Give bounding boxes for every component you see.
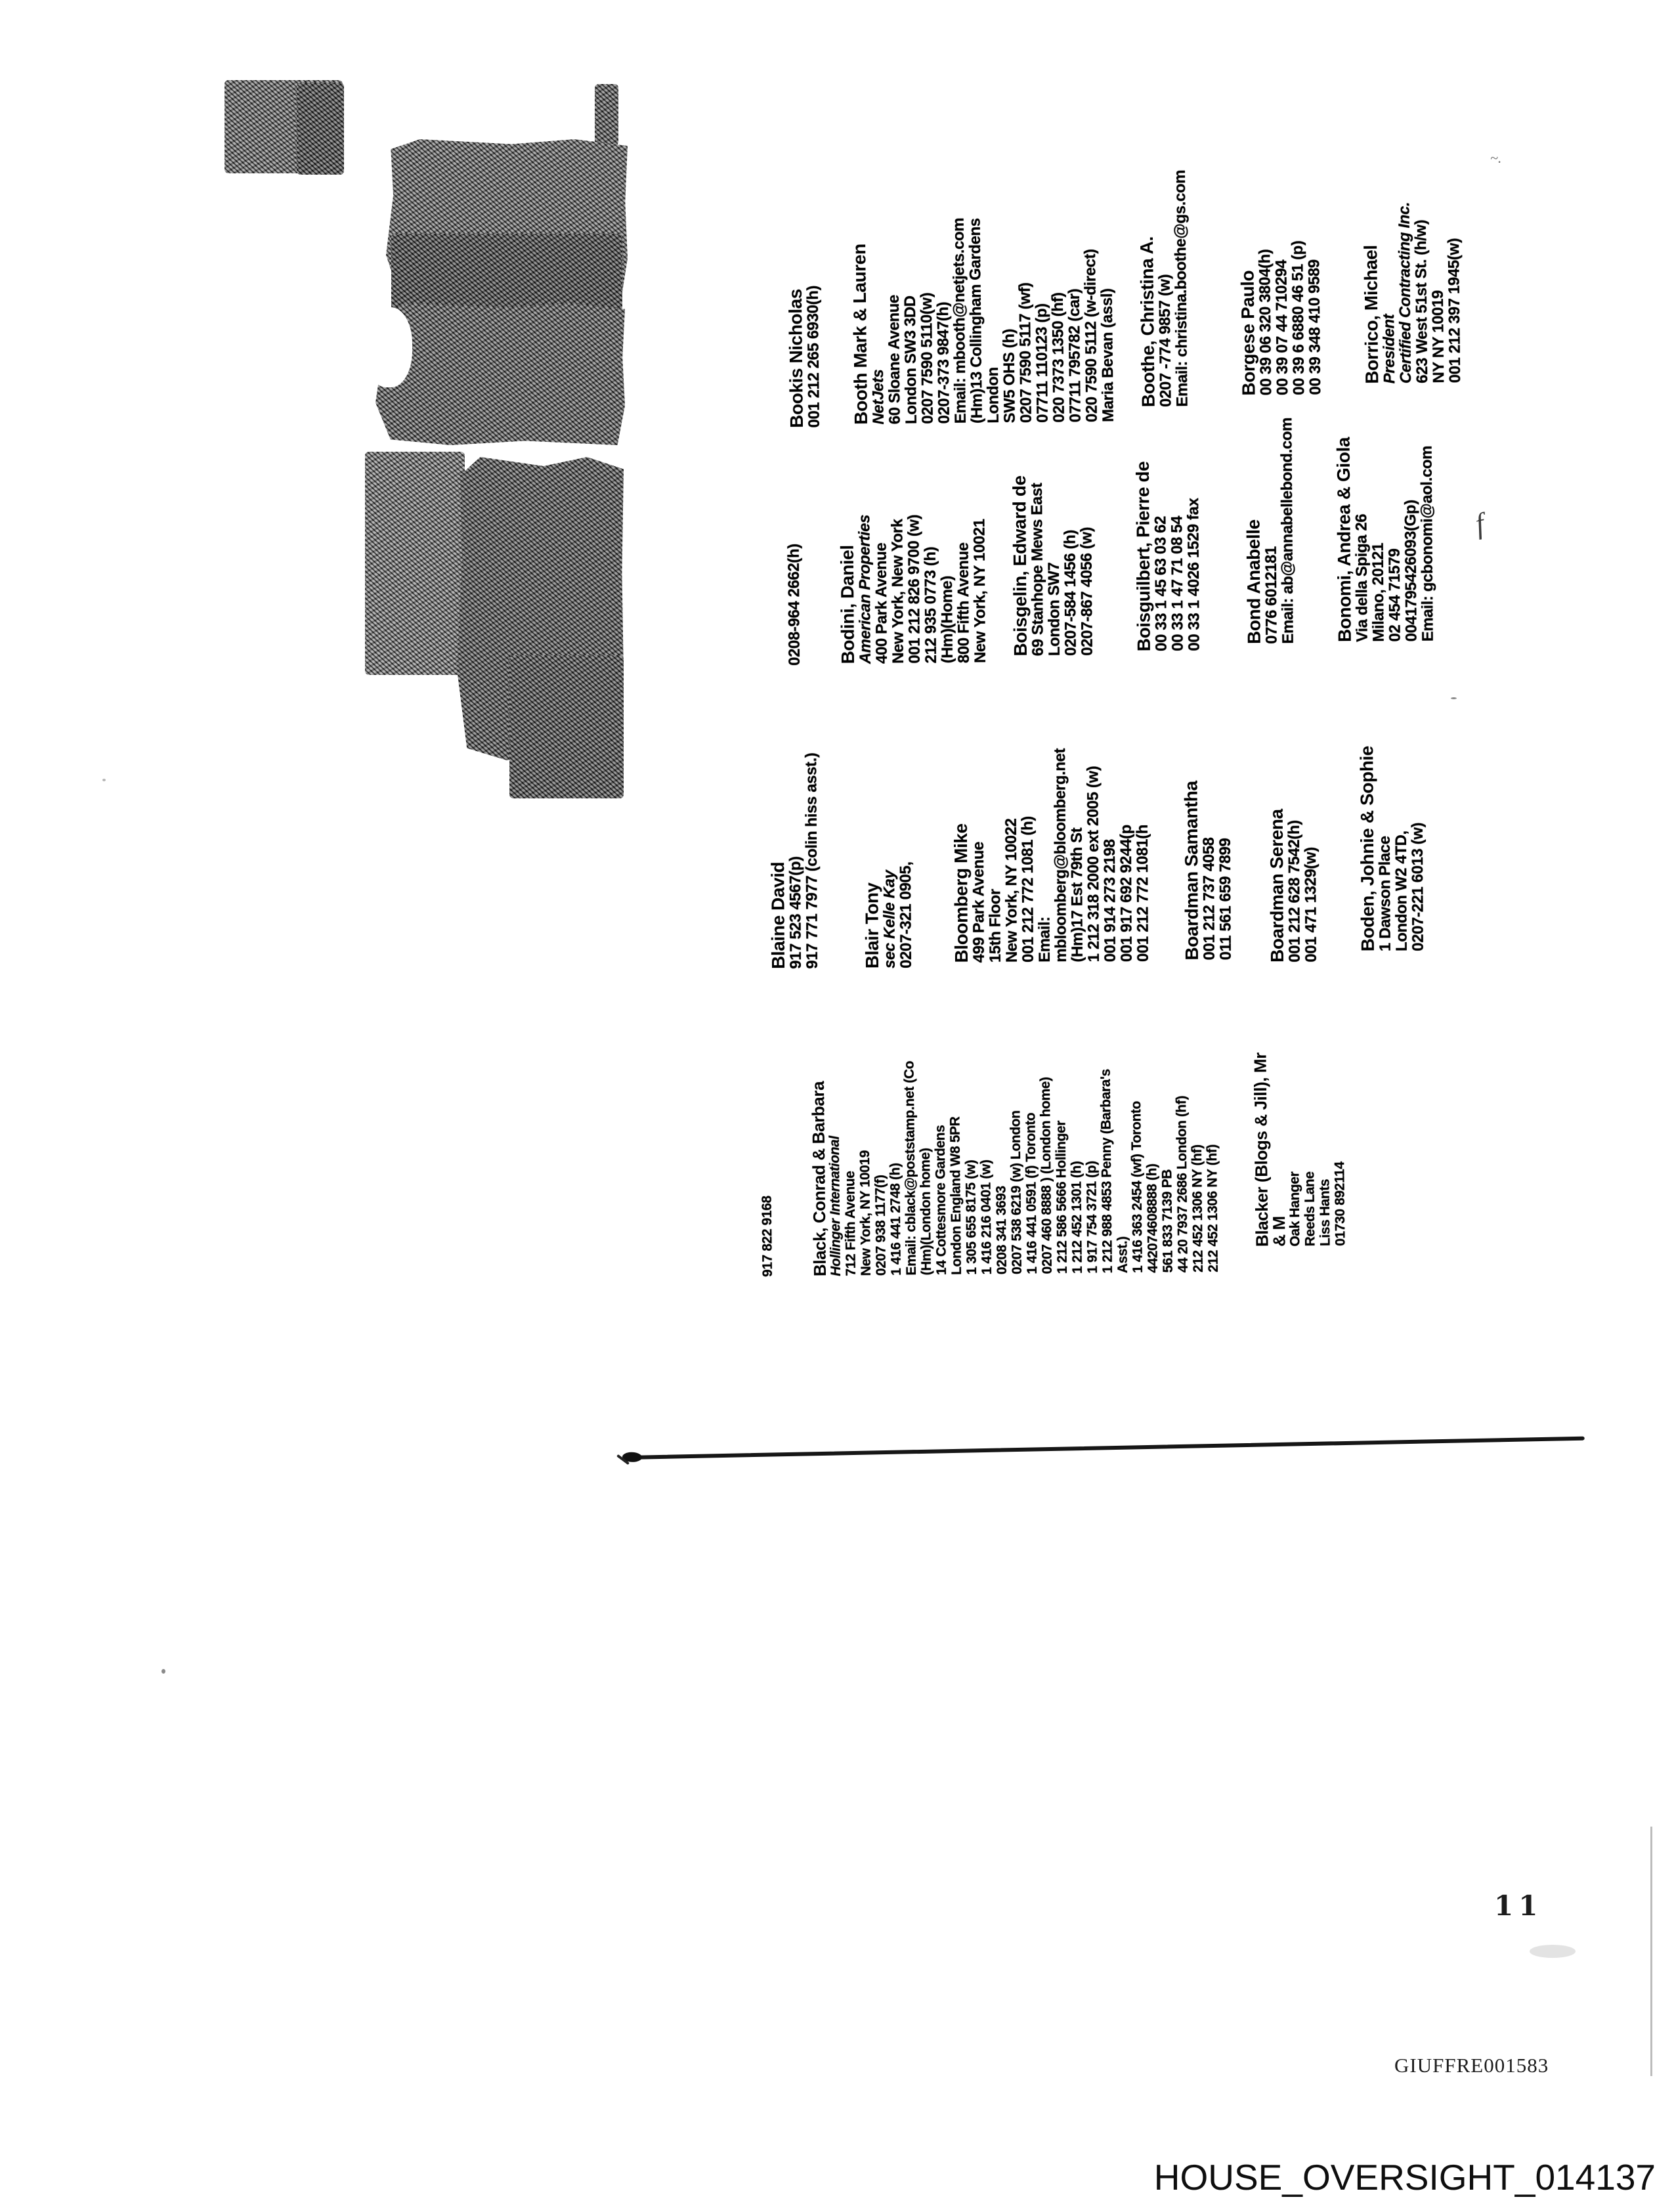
contact-entry: Bodini, DanielAmerican Properties400 Par… [837,376,989,664]
contact-entry: Black, Conrad & BarbaraHollinger Interna… [807,878,1221,1277]
contact-line: 0207-584 1456 (h) [1061,375,1079,656]
contact-entry: Borgese Paulo00 39 06 320 3804(h)00 39 0… [1237,140,1323,395]
contact-name: Boisguilbert, Pierre de [1133,374,1153,651]
scan-squiggle: ~. [1490,150,1501,167]
contact-line: Via della Spiga 26 [1352,373,1371,642]
contact-entry: Blacker (Blogs & Jill), Mr& MOak HangerR… [1250,877,1348,1247]
scan-artifact-blob [365,452,465,675]
contact-line: 212 452 1306 NY (hf) [1202,878,1221,1272]
contact-entry: 917 822 9168 [756,883,775,1277]
scan-speck [1451,697,1457,699]
contact-line: 001 212 826 9700 (w) [905,376,923,664]
scan-artifact-blob [297,83,344,175]
contact-line: 0208-964 2662(h) [784,377,803,666]
contact-line: 02 454 71579 [1385,372,1404,641]
contact-line: 69 Stanhope Mews East [1028,375,1046,656]
contact-line: (Hm)(Home) [937,376,956,663]
scan-squiggle: f [1472,506,1488,540]
contact-entry: Boisgelin, Edward de69 Stanhope Mews Eas… [1010,375,1096,657]
scan-edge-streak [625,1437,1585,1460]
contact-line: 00 33 1 4026 1529 fax [1184,374,1203,651]
contact-entry: Boisguilbert, Pierre de00 33 1 45 63 03 … [1133,374,1203,652]
scan-edge-line [1650,1827,1652,2076]
contact-name: Borgese Paulo [1237,141,1258,396]
contact-name: Bodini, Daniel [837,376,857,664]
contact-entry: Boden, Johnie & Sophie1 Dawson PlaceLond… [1358,670,1427,952]
contact-line: 00 33 1 47 71 08 54 [1168,374,1186,651]
contact-line: 917 822 9168 [756,883,775,1277]
contact-line: NY NY 10019 [1428,139,1447,383]
contact-line: New York, NY 10021 [970,376,989,663]
contact-name: Bonomi, Andrea & Giola [1334,373,1354,642]
contact-line: Email: christina.boothe@gs.com [1171,142,1190,407]
address-column-2: 0208-964 2662(h)Bodini, DanielAmerican P… [784,372,1443,666]
contact-line: 623 West 51st St. (h/w) [1411,139,1430,383]
contact-entry: 0208-964 2662(h) [784,377,803,666]
scan-artifact-blob [391,234,622,311]
contact-line: 001 212 397 1945(w) [1444,139,1463,383]
scanned-page: Bookis Nicholas001 212 265 6930(h)Booth … [0,0,1674,2212]
contact-line: American Properties [855,376,874,664]
contact-name: Boisgelin, Edward de [1010,375,1030,656]
contact-line: 800 Fifth Avenue [954,376,972,663]
contact-line: 0207-221 6013 (w) [1409,670,1427,951]
contact-line: President [1379,139,1398,383]
contact-line: Email: gcbonomi@aol.com [1418,372,1436,641]
page-number: 11 [1494,1890,1543,1922]
contact-name: Boothe, Christina A. [1136,142,1157,407]
contact-line: 0207-867 4056 (w) [1077,375,1096,656]
contact-line: 0041795426093(Gp) [1402,372,1420,641]
contact-name: Bond Anabelle [1243,374,1264,644]
contact-line: 1 Dawson Place [1376,670,1394,951]
contact-line: 00 33 1 45 63 03 62 [1151,374,1170,651]
scan-smudge [1530,1945,1576,1958]
scan-artifact-blob [595,84,618,146]
contact-line: Certified Contracting Inc. [1395,139,1414,383]
contact-line: Milano, 20121 [1369,373,1387,642]
contact-line: 212 935 0773 (h) [921,376,939,663]
contact-name: Borrico, Michael [1360,140,1381,384]
contact-line: 00 39 348 410 9589 [1304,140,1323,395]
footer-stamp: HOUSE_OVERSIGHT_014137 [1154,2156,1656,2198]
contact-line: London W2 4TD, [1392,670,1410,951]
scan-speck [102,779,106,781]
scan-speck [161,1669,165,1674]
contact-line: New York, New York [888,376,907,664]
address-column-4: 917 822 9168Black, Conrad & BarbaraHolli… [756,877,1354,1277]
contact-entry: Bonomi, Andrea & GiolaVia della Spiga 26… [1334,372,1436,642]
scan-artifact-blob [376,303,625,445]
contact-line: 0776 6012181 [1262,374,1280,644]
contact-entry: Boothe, Christina A.0207 -774 9857 (w)Em… [1136,142,1190,408]
contact-line: 01730 892114 [1329,877,1348,1246]
contact-entry: Borrico, MichaelPresidentCertified Contr… [1360,139,1463,384]
scan-artifact-blob [509,655,624,798]
scan-artifact-hole [365,307,412,387]
contact-line: 400 Park Avenue [872,376,890,664]
contact-line: Email: ab@annabellebond.com [1278,374,1297,644]
contact-name: Boden, Johnie & Sophie [1358,670,1377,951]
bates-stamp: GIUFFRE001583 [1394,2054,1549,2077]
contact-entry: Bond Anabelle0776 6012181Email: ab@annab… [1243,374,1297,645]
contact-line: London SW7 [1044,375,1063,656]
